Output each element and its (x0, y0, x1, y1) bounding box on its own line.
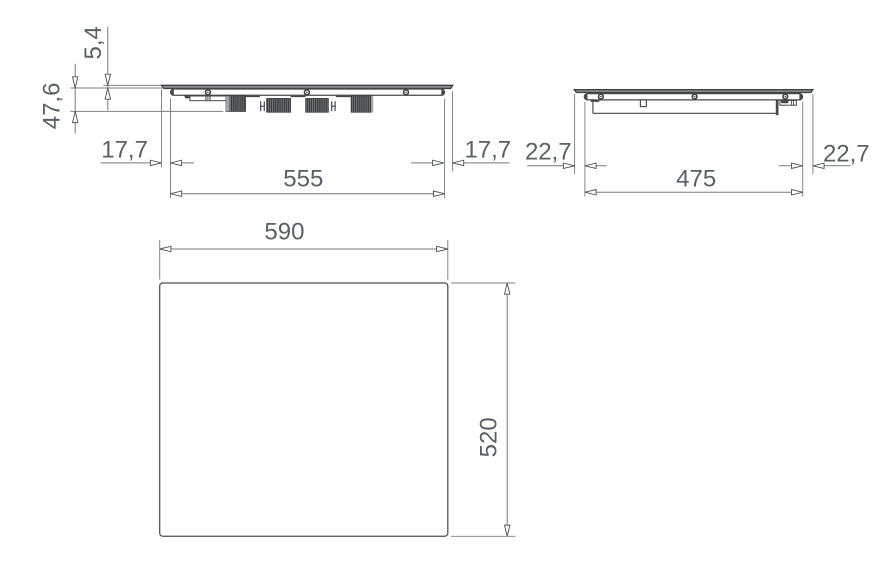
svg-text:17,7: 17,7 (101, 137, 148, 164)
svg-text:22,7: 22,7 (823, 141, 870, 168)
svg-text:475: 475 (676, 165, 716, 192)
svg-text:47,6: 47,6 (39, 83, 66, 130)
svg-text:555: 555 (283, 166, 323, 193)
svg-text:520: 520 (475, 417, 502, 457)
svg-text:17,7: 17,7 (464, 137, 511, 164)
svg-text:5,4: 5,4 (80, 26, 107, 59)
svg-text:590: 590 (264, 218, 304, 245)
svg-text:22,7: 22,7 (525, 139, 572, 166)
